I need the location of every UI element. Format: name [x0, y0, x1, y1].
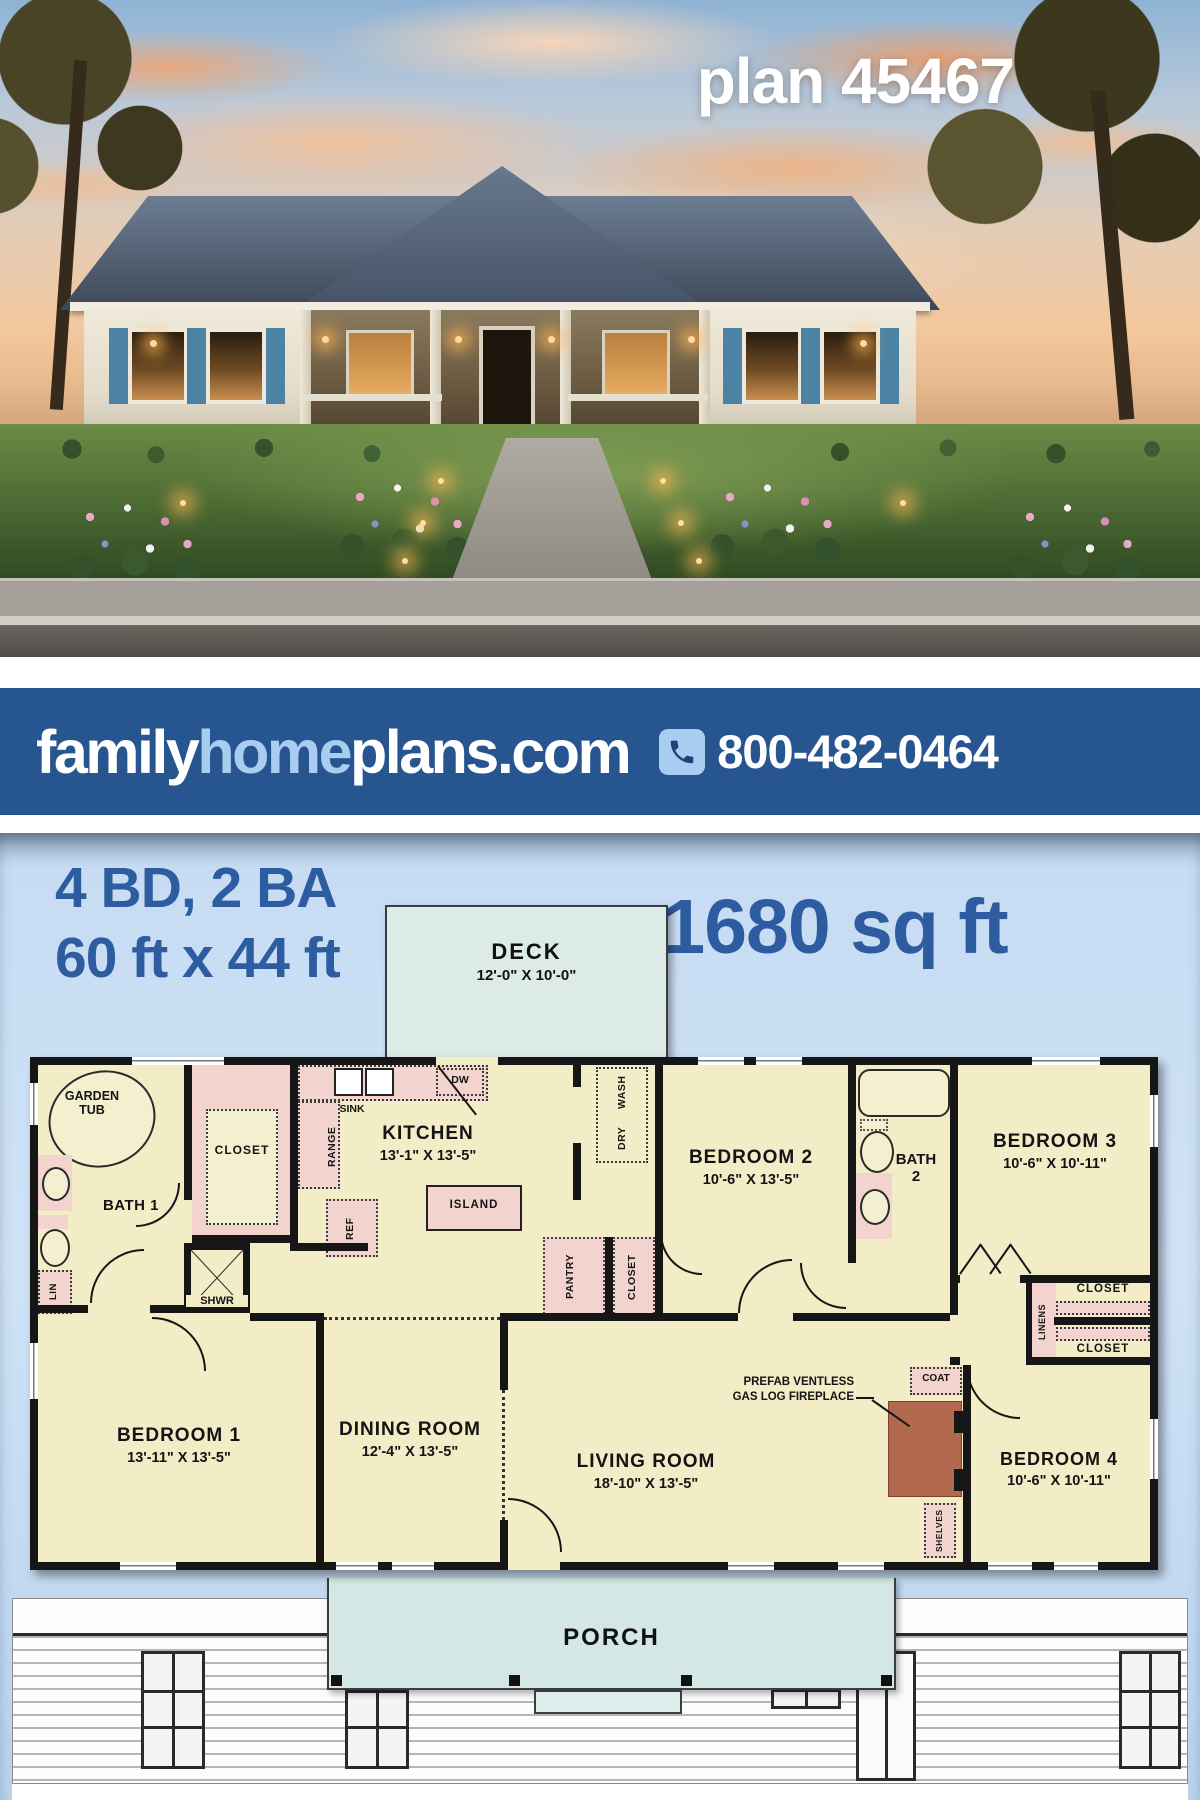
path-light [696, 558, 702, 564]
window [696, 1057, 746, 1065]
window [390, 1562, 436, 1570]
path-light [420, 520, 426, 526]
pantry-label: PANTRY [564, 1243, 576, 1311]
wall [793, 1313, 950, 1321]
kitchen-dining-divider [324, 1317, 500, 1320]
sink-basin [334, 1068, 363, 1096]
bath2-label: BATH2 [884, 1151, 948, 1185]
hall-closet-label: CLOSET [626, 1243, 638, 1311]
path-light [438, 478, 444, 484]
bath1-toilet-tank [38, 1215, 68, 1229]
deck: DECK 12'-0" X 10'-0" [385, 905, 668, 1065]
coat-label: COAT [910, 1373, 962, 1384]
wall [290, 1065, 298, 1243]
wall [1026, 1357, 1150, 1365]
wall [250, 1313, 316, 1321]
fireplace-notch [954, 1469, 963, 1491]
porch-post [699, 310, 710, 431]
closet-b4-shelf [1056, 1327, 1150, 1341]
wall [605, 1237, 613, 1317]
wall [1054, 1317, 1150, 1325]
door-arc-hall [660, 1233, 702, 1275]
bath2-tub [858, 1069, 950, 1117]
deck-dims: 12'-0" X 10'-0" [387, 967, 666, 984]
room-living: LIVING ROOM18'-10" X 13'-5" [530, 1451, 762, 1492]
wall [500, 1313, 738, 1321]
wall-sconce [455, 336, 462, 343]
porch-label: PORCH [329, 1624, 894, 1652]
path-light [180, 500, 186, 506]
flower-bed [330, 470, 480, 560]
range-label: RANGE [326, 1109, 338, 1185]
wall [290, 1243, 368, 1251]
flower-bed [1000, 490, 1150, 580]
wall [192, 1235, 290, 1243]
porch: PORCH [327, 1578, 896, 1690]
wall [950, 1275, 960, 1283]
stat-area: 1680 sq ft [620, 883, 1050, 972]
wall-sconce [860, 340, 867, 347]
logo-plans: plans.com [350, 718, 629, 786]
room-kitchen: KITCHEN13'-1" X 13'-5" [338, 1123, 518, 1164]
bifold-door-line [959, 1244, 981, 1275]
room-bedroom1: BEDROOM 113'-11" X 13'-5" [66, 1425, 292, 1466]
floor-plan-section: 4 BD, 2 BA 60 ft x 44 ft 1680 sq ft DECK… [0, 833, 1200, 1800]
island-label: ISLAND [426, 1199, 522, 1211]
fireplace-notch [954, 1411, 963, 1433]
wall [1020, 1275, 1150, 1283]
window-shuttered [128, 328, 188, 404]
flower-bed [60, 490, 210, 580]
phone-icon [659, 729, 705, 775]
elevation-window [1119, 1651, 1181, 1769]
porch-steps [534, 1690, 682, 1714]
door-arc-bath2 [800, 1263, 846, 1309]
door-arc-bedroom4 [966, 1365, 1020, 1419]
wall [848, 1065, 856, 1263]
bifold-door-line [1009, 1243, 1031, 1274]
window-shuttered [820, 328, 880, 404]
bath2-sink [860, 1189, 890, 1225]
sink-basin [365, 1068, 394, 1096]
window [986, 1562, 1034, 1570]
window [1030, 1057, 1102, 1065]
porch-post-mark [509, 1675, 520, 1686]
porch-post [300, 310, 311, 431]
elevation-window [141, 1651, 205, 1769]
wall [950, 1357, 960, 1365]
window [334, 1562, 380, 1570]
room-bedroom4: BEDROOM 410'-6" X 10'-11" [968, 1449, 1150, 1489]
front-door [479, 326, 535, 434]
window [30, 1081, 38, 1127]
wall [1026, 1283, 1032, 1365]
wall-sconce [688, 336, 695, 343]
dry-label: DRY [616, 1117, 628, 1159]
linens-label: LINENS [1037, 1289, 1047, 1355]
front-door-opening [508, 1562, 560, 1570]
wall [184, 1065, 192, 1200]
porch-post [560, 310, 571, 431]
room-bath1: BATH 1 [76, 1197, 186, 1214]
wall [38, 1305, 88, 1313]
elevation-base [12, 1784, 1188, 1800]
walkin-closet-label: CLOSET [196, 1143, 288, 1157]
curb [0, 616, 1200, 625]
phone-block[interactable]: 800-482-0464 [659, 724, 998, 779]
path-light [660, 478, 666, 484]
window [1150, 1417, 1158, 1481]
wash-label: WASH [616, 1071, 628, 1113]
window [1150, 1093, 1158, 1149]
wall-sconce [150, 340, 157, 347]
walkin-closet-inner [206, 1109, 278, 1225]
white-divider [0, 657, 1200, 688]
window [754, 1057, 804, 1065]
open-plan-divider [502, 1390, 505, 1520]
window [30, 1341, 38, 1401]
porch-railing [302, 394, 442, 401]
window [726, 1562, 776, 1570]
bath1-toilet [40, 1229, 70, 1267]
fireplace [888, 1401, 962, 1497]
door-arc-bedroom2 [738, 1259, 792, 1313]
flower-bed [700, 470, 850, 560]
dishwasher-label: DW [436, 1074, 484, 1086]
site-logo[interactable]: familyhomeplans.com [36, 717, 629, 787]
deck-door-opening [436, 1057, 498, 1065]
shelves-label: SHELVES [934, 1507, 944, 1555]
plan-number: plan 45467 [697, 44, 1014, 118]
path-light [678, 520, 684, 526]
stat-footprint: 60 ft x 44 ft [55, 925, 340, 991]
shower-label: SHWR [186, 1295, 248, 1307]
closet-b3-shelf [1056, 1301, 1150, 1315]
room-bedroom2: BEDROOM 210'-6" X 13'-5" [656, 1147, 846, 1188]
porch-railing [568, 394, 708, 401]
garden-tub-label: GARDEN TUB [52, 1089, 132, 1118]
logo-family: family [36, 718, 197, 786]
wall-sconce [548, 336, 555, 343]
window-shuttered [206, 328, 266, 404]
porch-post-mark [881, 1675, 892, 1686]
white-divider [0, 815, 1200, 833]
floor-plan: CLOSET SINK DW RANGE REF ISLAND WASH DRY… [30, 1057, 1158, 1570]
room-dining: DINING ROOM12'-4" X 13'-5" [322, 1419, 498, 1460]
wall-sconce [322, 336, 329, 343]
wall [500, 1520, 508, 1562]
door-arc-bedroom1 [152, 1317, 206, 1371]
window [130, 1057, 226, 1065]
house-photo: plan 45467 [0, 0, 1200, 657]
wall [573, 1143, 581, 1200]
wall [150, 1305, 184, 1313]
path-light [900, 500, 906, 506]
logo-home: home [197, 718, 350, 786]
door-arc-front-door [508, 1498, 562, 1552]
window [118, 1562, 178, 1570]
closet-b4-label: CLOSET [1056, 1343, 1150, 1355]
window [1052, 1562, 1100, 1570]
bath2-toilet-tank [860, 1119, 888, 1131]
street [0, 625, 1200, 657]
door-arc-bath1 [90, 1249, 144, 1303]
porch-post-mark [681, 1675, 692, 1686]
porch-post [430, 310, 441, 431]
stat-bed-bath: 4 BD, 2 BA [55, 855, 336, 921]
wall [500, 1313, 508, 1390]
brand-banner: familyhomeplans.com 800-482-0464 [0, 688, 1200, 815]
window-shuttered [742, 328, 802, 404]
wall [655, 1065, 663, 1317]
porch-post-mark [331, 1675, 342, 1686]
phone-number: 800-482-0464 [717, 724, 998, 779]
bath1-sink [42, 1167, 70, 1201]
room-bedroom3: BEDROOM 310'-6" X 10'-11" [960, 1131, 1150, 1172]
closet-b3-label: CLOSET [1056, 1283, 1150, 1295]
wall [573, 1065, 581, 1087]
house-plan-pin: plan 45467 familyhomeplans.com 800-482-0… [0, 0, 1200, 1800]
path-light [402, 558, 408, 564]
porch-window [346, 330, 414, 400]
deck-label: DECK [387, 939, 666, 965]
sidewalk [0, 578, 1200, 619]
porch-window [602, 330, 670, 400]
window [836, 1562, 886, 1570]
fireplace-note: PREFAB VENTLESSGAS LOG FIREPLACE [666, 1375, 854, 1405]
